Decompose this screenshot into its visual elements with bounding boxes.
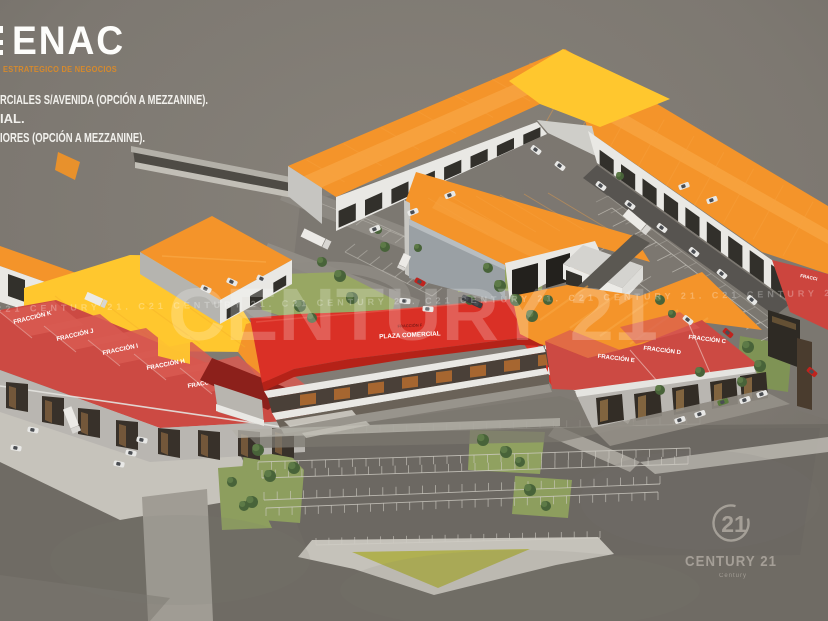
svg-text:ENAC: ENAC (12, 19, 125, 63)
svg-text:ESTRATEGICO DE NEGOCIOS: ESTRATEGICO DE NEGOCIOS (3, 65, 117, 74)
svg-text:21: 21 (721, 511, 747, 537)
svg-text:CENTURY 21: CENTURY 21 (168, 273, 658, 356)
svg-text:IAL.: IAL. (0, 111, 25, 126)
svg-text:CENTURY 21: CENTURY 21 (685, 553, 777, 570)
svg-text:Century: Century (719, 573, 747, 579)
svg-text:RCIALES S/AVENIDA (OPCIÓN A ME: RCIALES S/AVENIDA (OPCIÓN A MEZZANINE). (0, 92, 208, 107)
svg-text:IORES (OPCIÓN A MEZZANINE).: IORES (OPCIÓN A MEZZANINE). (0, 130, 145, 145)
